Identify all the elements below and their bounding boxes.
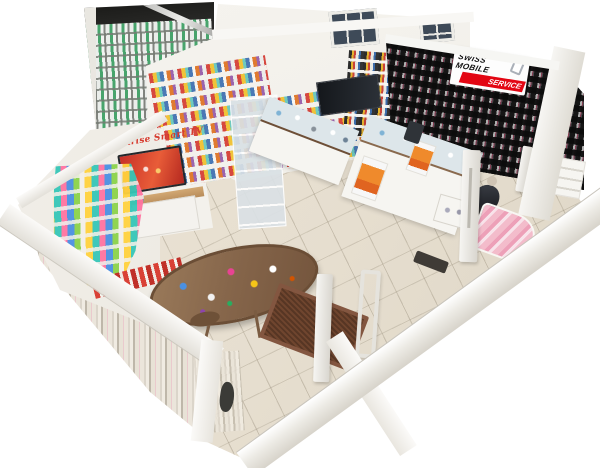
promo-poster [351, 155, 389, 201]
gate-slot [467, 168, 472, 228]
store-dollhouse-view: SWISS MOBILE SERVICE Sunrise Smart TV [0, 0, 600, 468]
customer-person-head [487, 176, 497, 186]
cutaway-wall-edge [80, 4, 96, 130]
